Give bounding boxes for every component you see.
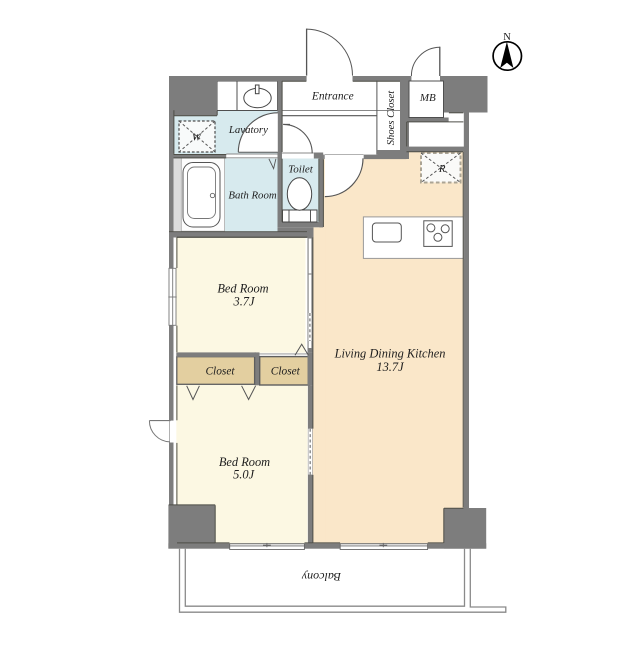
svg-text:W: W — [192, 131, 202, 143]
svg-text:Balcony: Balcony — [301, 570, 341, 584]
svg-text:3.7J: 3.7J — [233, 295, 255, 309]
svg-text:Entrance: Entrance — [311, 91, 354, 103]
svg-text:Closet: Closet — [205, 366, 235, 378]
svg-text:13.7J: 13.7J — [376, 360, 404, 374]
svg-text:Lavatory: Lavatory — [228, 124, 268, 136]
svg-text:5.0J: 5.0J — [233, 468, 254, 482]
svg-text:Living Dining Kitchen: Living Dining Kitchen — [334, 347, 446, 361]
svg-text:Bath Room: Bath Room — [228, 190, 276, 202]
svg-text:Bed Room: Bed Room — [217, 282, 268, 296]
svg-text:Toilet: Toilet — [288, 164, 314, 176]
svg-text:R: R — [438, 163, 446, 175]
svg-text:Closet: Closet — [271, 366, 301, 378]
svg-text:Shoes Closet: Shoes Closet — [386, 90, 397, 145]
svg-text:N: N — [503, 32, 511, 43]
svg-text:MB: MB — [419, 92, 436, 104]
